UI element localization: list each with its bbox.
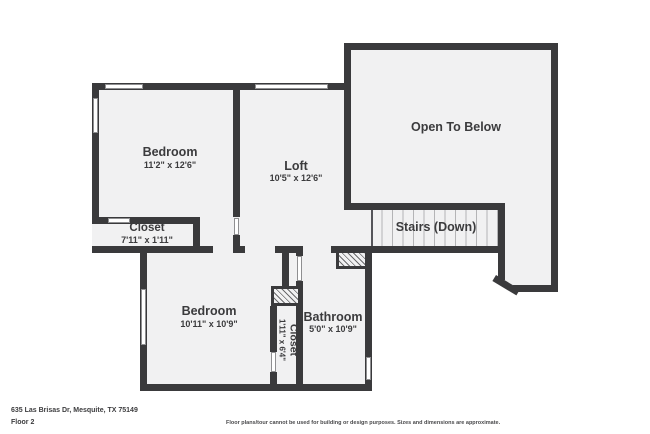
- wall: [551, 43, 558, 292]
- wall: [270, 372, 277, 391]
- wall: [498, 203, 505, 280]
- wall: [233, 246, 245, 253]
- room-label-open-to-below: Open To Below: [411, 121, 501, 134]
- window: [255, 84, 328, 89]
- window: [105, 84, 143, 89]
- hatch-shaft: [336, 250, 368, 269]
- room-dims-bedroom2: 10'11" x 10'9": [180, 320, 237, 329]
- floor-label: Floor 2: [11, 419, 34, 426]
- room-label-bedroom1: Bedroom: [143, 146, 198, 159]
- window: [141, 289, 146, 345]
- hatch-shaft: [271, 286, 301, 306]
- room-label-closet2: Closet 1'11" x 6'4": [276, 319, 299, 361]
- wall: [92, 246, 213, 253]
- room-dims-bathroom: 5'0" x 10'9": [309, 325, 357, 334]
- door-opening: [108, 218, 130, 223]
- wall: [140, 384, 372, 391]
- wall: [344, 203, 505, 210]
- room-label-bathroom: Bathroom: [303, 311, 362, 324]
- wall: [233, 83, 240, 217]
- disclaimer-text: Floor plans/tour cannot be used for buil…: [226, 420, 500, 426]
- room-label-closet2-name: Closet: [286, 319, 299, 361]
- window: [366, 357, 371, 380]
- wall: [282, 246, 289, 288]
- door-opening: [297, 256, 302, 281]
- room-dims-loft: 10'5" x 12'6": [270, 174, 323, 183]
- room-label-stairs: Stairs (Down): [396, 221, 477, 234]
- stairs-edge-line: [371, 210, 373, 246]
- wall: [296, 246, 303, 256]
- room-dims-closet2: 1'11" x 6'4": [276, 319, 286, 361]
- floor-plan: Bedroom 11'2" x 12'6" Loft 10'5" x 12'6"…: [0, 0, 650, 434]
- room-label-loft: Loft: [284, 160, 308, 173]
- room-dims-closet1: 7'11" x 1'11": [121, 236, 173, 245]
- room-floor-chamfered: [498, 203, 558, 292]
- room-label-bedroom2: Bedroom: [182, 305, 237, 318]
- address-text: 635 Las Brisas Dr, Mesquite, TX 75149: [11, 407, 138, 414]
- door-opening: [271, 352, 276, 372]
- wall: [344, 43, 351, 210]
- wall: [344, 43, 558, 50]
- room-label-closet1: Closet: [129, 223, 164, 235]
- window: [93, 98, 98, 133]
- door-opening: [234, 218, 239, 235]
- room-dims-bedroom1: 11'2" x 12'6": [144, 161, 196, 170]
